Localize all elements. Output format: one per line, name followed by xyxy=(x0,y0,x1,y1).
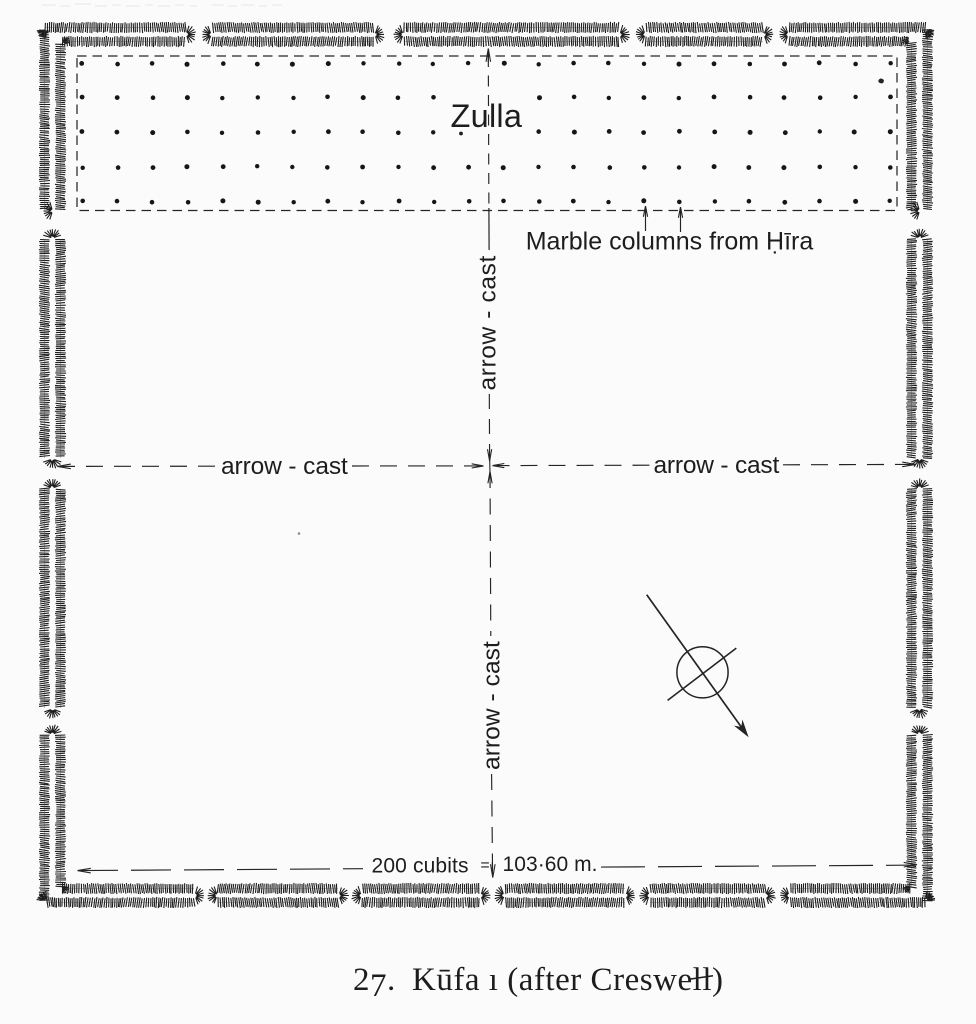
svg-text:103·60 m.: 103·60 m. xyxy=(503,853,598,876)
svg-text:arrow - cast: arrow - cast xyxy=(479,640,506,770)
svg-text:arrow - cast: arrow - cast xyxy=(654,452,781,479)
svg-text:Marble columns from Ḥīra: Marble columns from Ḥīra xyxy=(526,228,814,256)
svg-text:arrow - cast: arrow - cast xyxy=(475,255,502,391)
svg-text:=: = xyxy=(480,857,489,874)
svg-text:27.: 27. xyxy=(353,962,396,1004)
svg-text:Zulla: Zulla xyxy=(451,98,524,134)
svg-text:Kūfa ı (after Creswell): Kūfa ı (after Creswell) xyxy=(412,962,723,998)
svg-text:200 cubits: 200 cubits xyxy=(372,855,469,878)
svg-text:arrow - cast: arrow - cast xyxy=(221,453,349,480)
